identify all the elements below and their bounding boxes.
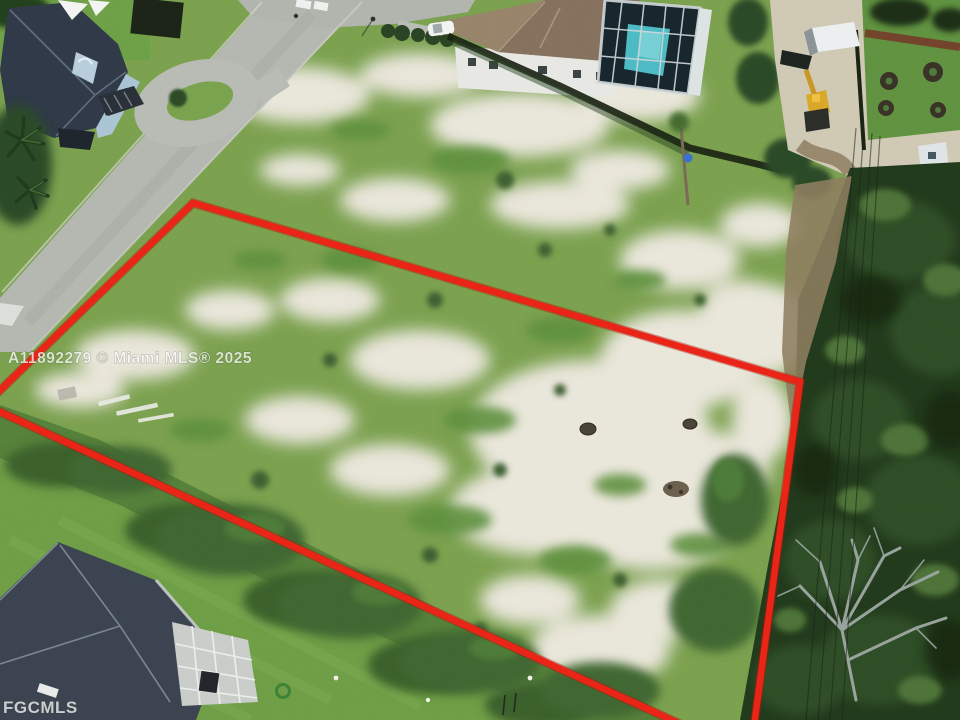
mls-logo-watermark: FGCMLS (3, 698, 78, 717)
aerial-photo-canvas: A11892279 © Miami MLS® 2025 FGCMLS (0, 0, 960, 720)
aerial-photo: A11892279 © Miami MLS® 2025 FGCMLS (0, 0, 960, 720)
mls-watermark: A11892279 © Miami MLS® 2025 (8, 350, 252, 367)
